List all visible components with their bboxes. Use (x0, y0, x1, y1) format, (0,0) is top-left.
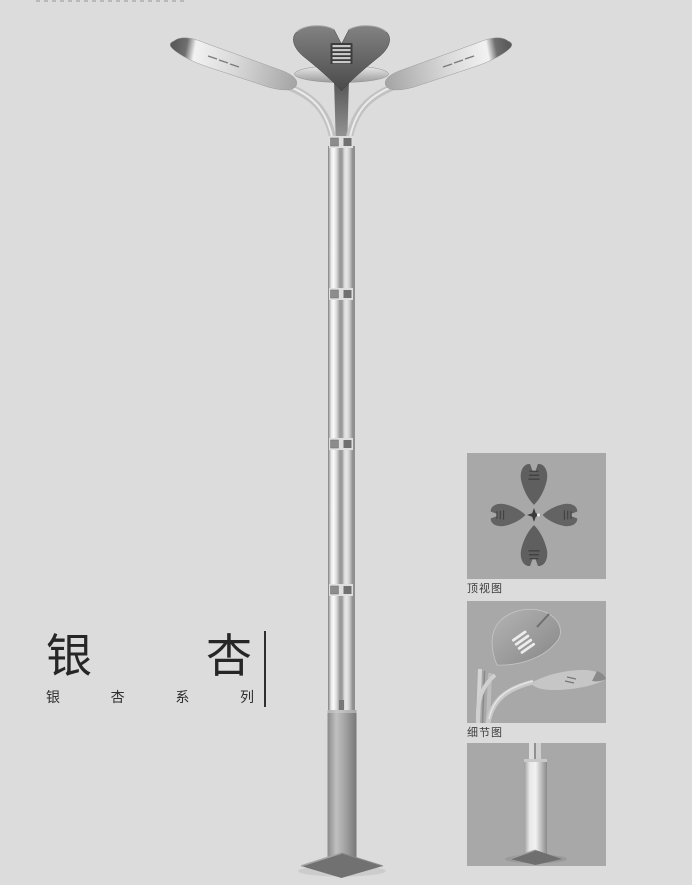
subtitle-char-4: 列 (240, 690, 254, 704)
ginkgo-closeup-graphic (467, 601, 606, 723)
title-char-2: 杏 (206, 633, 252, 679)
detail-panel-closeup: 细节图 (467, 601, 606, 739)
subtitle-char-1: 银 (46, 690, 60, 704)
ginkgo-top-view-graphic (467, 453, 606, 579)
right-lamp-head (385, 38, 512, 90)
subtitle-char-3: 系 (175, 690, 189, 704)
catalog-page: 顶视图 (0, 0, 692, 885)
closeup-caption: 细节图 (467, 728, 606, 739)
product-title: 银 杏 (46, 633, 252, 679)
product-series-subtitle: 银 杏 系 列 (46, 690, 254, 704)
subtitle-char-2: 杏 (111, 690, 125, 704)
lamp-pole (328, 146, 355, 712)
pole-base (298, 700, 386, 878)
top-view-image (467, 453, 606, 579)
detail-panel-top-view: 顶视图 (467, 453, 606, 595)
pole-base-graphic (467, 743, 606, 866)
base-view-image (467, 743, 606, 866)
title-divider-line (264, 631, 266, 707)
top-view-caption: 顶视图 (467, 584, 606, 595)
title-char-1: 银 (46, 633, 92, 679)
left-lamp-head (170, 38, 297, 90)
closeup-image (467, 601, 606, 723)
ginkgo-head (293, 26, 389, 91)
detail-panel-base-view (467, 743, 606, 871)
